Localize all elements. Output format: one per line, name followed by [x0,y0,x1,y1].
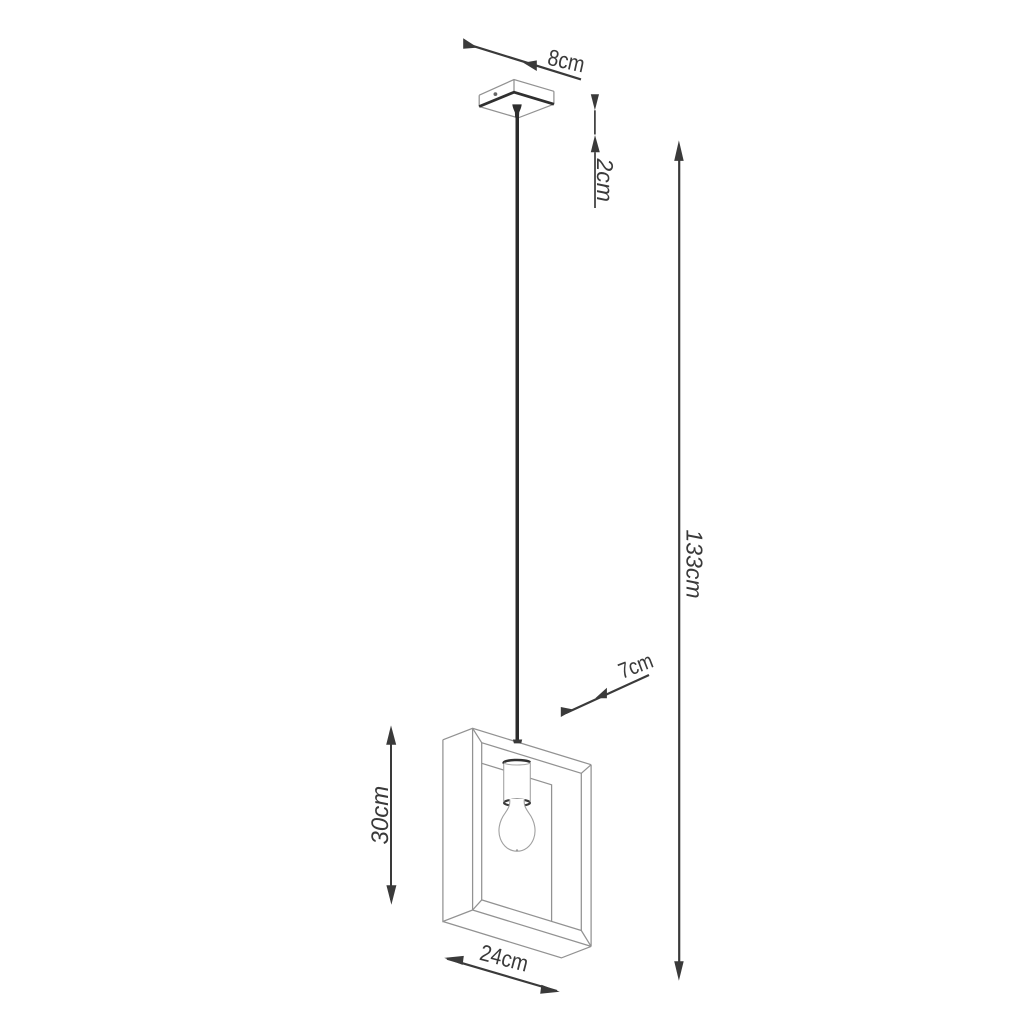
svg-text:30cm: 30cm [367,786,394,845]
svg-text:133cm: 133cm [682,530,708,599]
svg-text:2cm: 2cm [592,158,618,202]
